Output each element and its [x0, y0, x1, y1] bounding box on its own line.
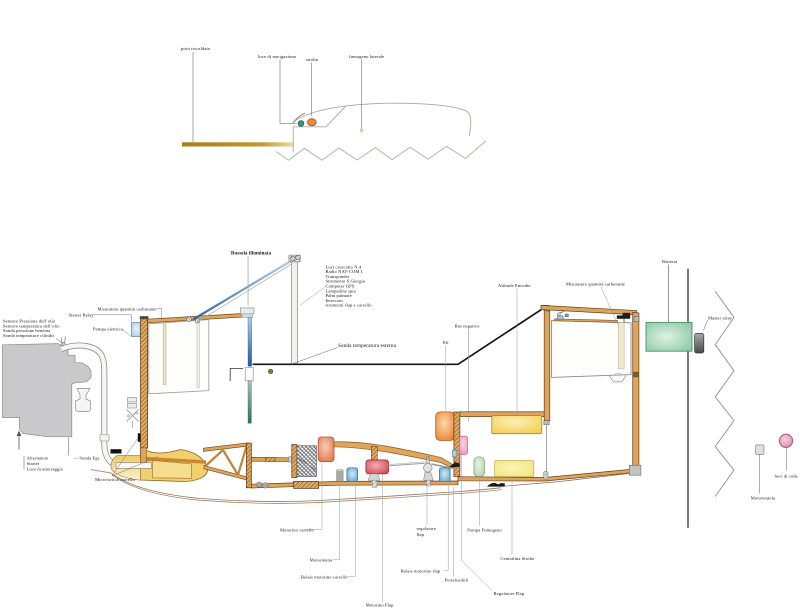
svg-text:Alternatore: Alternatore	[27, 456, 49, 461]
svg-text:Sonda temperature cilindri: Sonda temperature cilindri	[3, 333, 55, 338]
svg-text:Starter Relay: Starter Relay	[69, 313, 95, 318]
svg-text:Motorinetta: Motorinetta	[310, 558, 333, 563]
svg-text:Motorino Flap: Motorino Flap	[366, 603, 394, 608]
svg-text:Portafusibili: Portafusibili	[445, 577, 469, 582]
svg-text:Elt: Elt	[443, 340, 449, 345]
svg-text:Master relay: Master relay	[708, 315, 733, 320]
svg-text:Sonda temperatura esterna: Sonda temperatura esterna	[338, 343, 397, 349]
svg-text:Batteria: Batteria	[662, 259, 677, 264]
svg-text:Misuratore quantità carburante: Misuratore quantità carburante	[566, 281, 625, 286]
svg-text:Relais motorino carrello: Relais motorino carrello	[301, 575, 348, 580]
svg-text:Pompa Fumogeno: Pompa Fumogeno	[467, 527, 502, 532]
svg-text:fumogeno laterale: fumogeno laterale	[349, 54, 384, 59]
svg-text:pitot riscaldato: pitot riscaldato	[181, 46, 211, 51]
svg-text:Relais motorino flap: Relais motorino flap	[401, 568, 441, 573]
svg-text:Altitude Encoder: Altitude Encoder	[498, 283, 531, 288]
svg-text:regolatore: regolatore	[417, 526, 436, 531]
svg-text:Starter: Starter	[27, 461, 40, 466]
svg-text:Microswitch carrello: Microswitch carrello	[95, 477, 136, 482]
svg-text:strobo: strobo	[306, 57, 319, 62]
svg-text:Regolatore Flap: Regolatore Flap	[494, 591, 525, 596]
svg-text:Motorino carrello: Motorino carrello	[280, 527, 315, 532]
svg-text:Misuratore quantità carburante: Misuratore quantità carburante	[98, 306, 157, 311]
svg-text:Bussola illuminata: Bussola illuminata	[231, 252, 272, 257]
svg-text:flap: flap	[417, 532, 425, 537]
svg-text:luce di coda: luce di coda	[775, 474, 798, 479]
svg-text:— Sonda Egt: — Sonda Egt	[73, 456, 100, 461]
svg-text:Centralina Strobo: Centralina Strobo	[501, 556, 536, 561]
svg-text:Motoventola: Motoventola	[751, 496, 775, 501]
svg-text:Bus negativo: Bus negativo	[455, 323, 481, 328]
svg-text:strumenti flap e carrello: strumenti flap e carrello	[326, 303, 373, 308]
svg-text:Pompa elettrica: Pompa elettrica	[93, 326, 123, 331]
svg-text:Luce di atterraggio: Luce di atterraggio	[27, 467, 64, 472]
svg-text:luce di navigazione: luce di navigazione	[258, 54, 296, 59]
